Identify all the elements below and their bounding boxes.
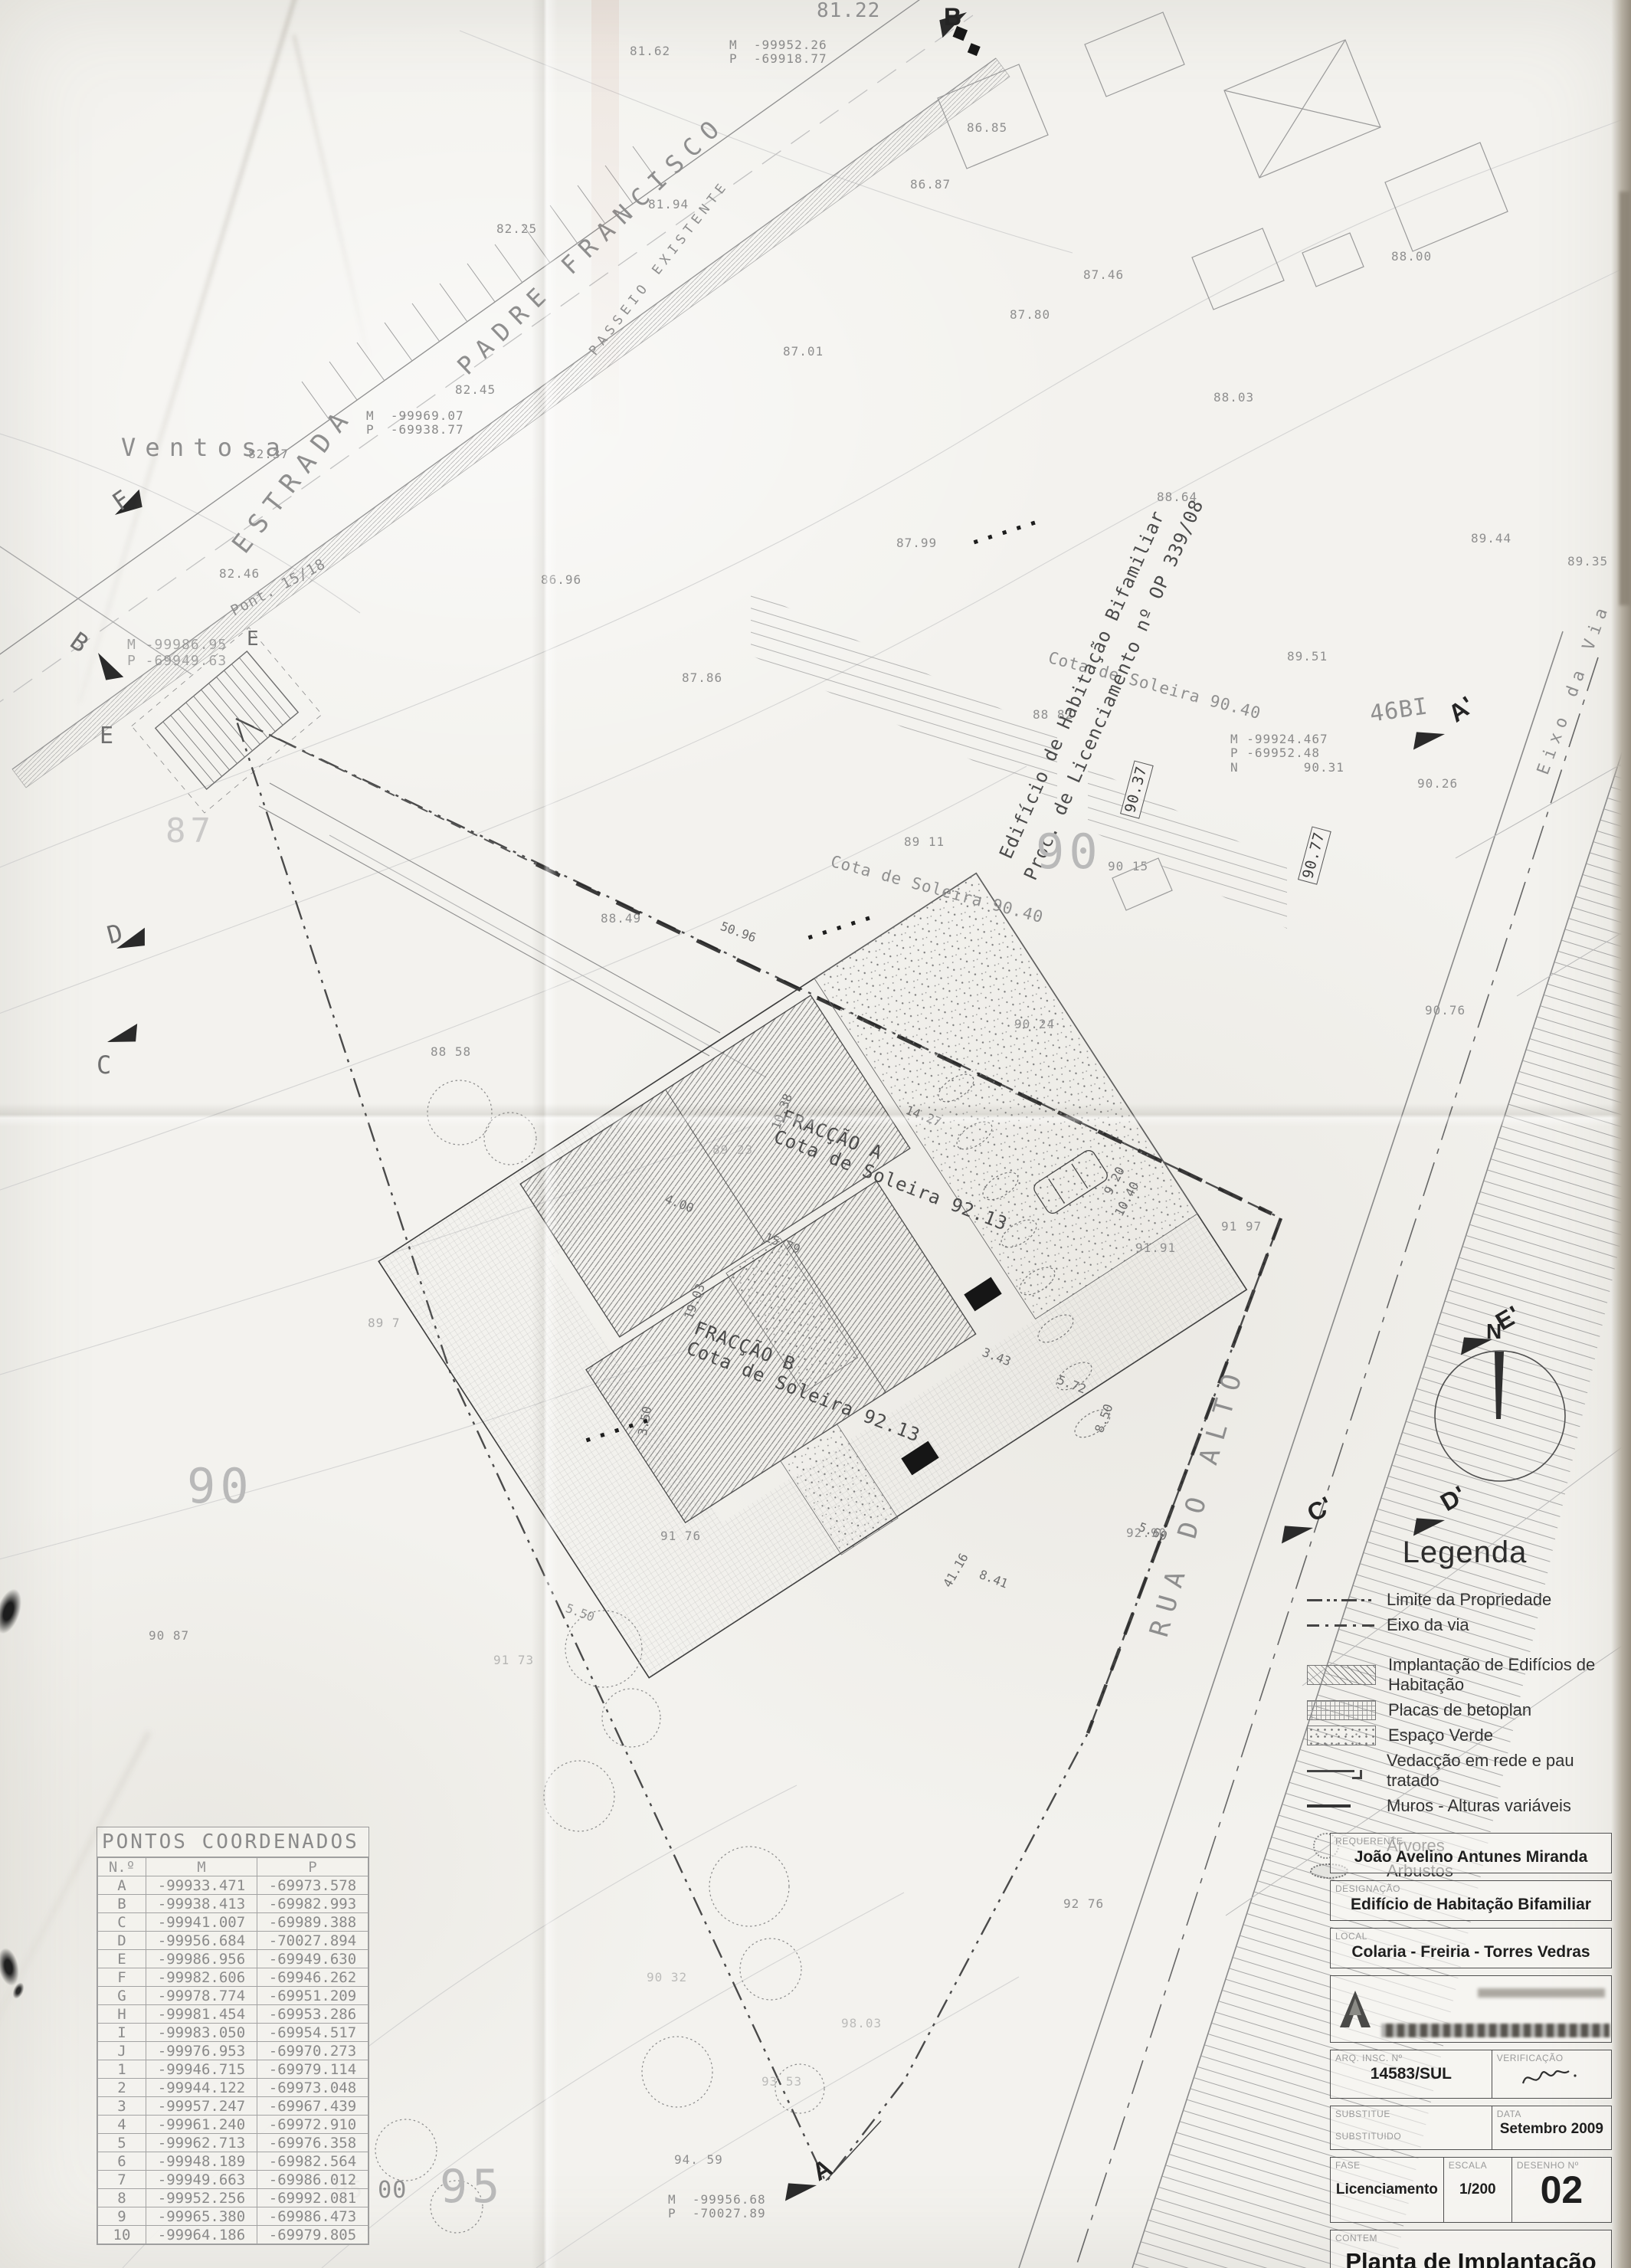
table-cell: -99944.122 [146, 2079, 257, 2097]
data-value: Setembro 2009 [1492, 2119, 1611, 2144]
local-box: LOCAL Colaria - Freiria - Torres Vedras [1330, 1928, 1612, 1968]
table-cell: -99962.713 [146, 2134, 257, 2152]
substituido-label: SUBSTITUIDO [1331, 2129, 1492, 2142]
elevation-label: 82.45 [455, 383, 496, 397]
table-cell: 6 [98, 2152, 146, 2171]
designacao-value: Edifício de Habitação Bifamiliar [1331, 1894, 1611, 1920]
elevation-label: 87.46 [1083, 268, 1124, 282]
boxed-elevation: 90.77 [1298, 826, 1331, 884]
elevation-label: 88.03 [1213, 391, 1254, 405]
table-cell: -69973.048 [257, 2079, 368, 2097]
legend-item: Placas de betoplan [1307, 1700, 1623, 1720]
table-row: 1-99946.715-69979.114 [98, 2060, 368, 2079]
table-cell: -99986.956 [146, 1950, 257, 1968]
elevation-label: 94. 59 [674, 2153, 723, 2167]
verificacao-box: VERIFICAÇÃO [1492, 2050, 1611, 2098]
table-row: 6-99948.189-69982.564 [98, 2152, 368, 2171]
legend-item: Implantação de Edifícios de Habitação [1307, 1655, 1623, 1695]
elevation-label: 81.62 [630, 44, 670, 58]
table-cell: -99965.380 [146, 2207, 257, 2226]
table-cell: 5 [98, 2134, 146, 2152]
elevation-label: 81.22 [817, 0, 880, 23]
elevation-label: 92 76 [1063, 1897, 1104, 1911]
dashdot-swatch-icon [1307, 1615, 1374, 1635]
substitue-box: SUBSTITUE SUBSTITUIDO [1331, 2106, 1492, 2149]
contour-label: 90 [1036, 824, 1102, 879]
elevation-label: 91.91 [1135, 1241, 1176, 1255]
contour-label: 90 [187, 1459, 254, 1513]
designacao-box: DESIGNAÇÃO Edifício de Habitação Bifamil… [1330, 1880, 1612, 1921]
street-label: Eixo da Via [1534, 600, 1614, 778]
elevation-label: 98.03 [841, 2017, 882, 2030]
elevation-label: 87.01 [783, 345, 824, 359]
table-cell: -99983.050 [146, 2024, 257, 2042]
coordinate-label: M -99969.07 P -69938.77 [366, 409, 464, 438]
table-cell: -69986.473 [257, 2207, 368, 2226]
coordinate-label: M -99956.68 P -70027.89 [668, 2193, 766, 2221]
elevation-label: 90 15 [1108, 860, 1148, 873]
legend-item: Vedacção em rede e pau tratado [1307, 1751, 1623, 1791]
table-row: E-99986.956-69949.630 [98, 1950, 368, 1968]
dimension-label: 5.72 [1055, 1373, 1088, 1397]
street-label: PADRE FRANCISCO [452, 110, 732, 381]
arq-verif-row: ARQ. INSC. Nº 14583/SUL VERIFICAÇÃO [1330, 2050, 1612, 2099]
contem-label: CONTEM [1331, 2230, 1611, 2243]
table-cell: -69982.564 [257, 2152, 368, 2171]
elevation-label: 87.80 [1010, 308, 1050, 322]
table-cell: -99957.247 [146, 2097, 257, 2116]
dimension-label: 3.50 [636, 1405, 655, 1437]
section-marker: B [944, 3, 962, 31]
table-cell: -99976.953 [146, 2042, 257, 2060]
elevation-label: 89 11 [904, 835, 945, 849]
table-cell: -69979.805 [257, 2226, 368, 2244]
table-cell: G [98, 1987, 146, 2005]
title-block: REQUERENTE João Avelino Antunes Miranda … [1330, 1833, 1612, 2268]
dashdotdot-swatch-icon [1307, 1590, 1374, 1610]
section-marker: E [100, 723, 114, 750]
col-header-p: P [257, 1858, 368, 1876]
dimension-label: 8.50 [1092, 1402, 1116, 1435]
contem-box: CONTEM Planta de Implantação [1330, 2230, 1612, 2268]
dimension-label: 3.43 [980, 1345, 1013, 1369]
coordinate-label: M -99924.467 P -69952.48 N 90.31 [1230, 733, 1344, 775]
dimension-label: 50.96 [719, 919, 758, 946]
table-cell: -69992.081 [257, 2189, 368, 2207]
legend-item: Muros - Alturas variáveis [1307, 1796, 1623, 1816]
elevation-label: 90 32 [647, 1971, 687, 1984]
table-cell: -69989.388 [257, 1913, 368, 1932]
table-cell: J [98, 2042, 146, 2060]
wall-swatch-icon [1307, 1796, 1374, 1816]
shrub-dots: ▪ ▪ ▪ ▪ ▪ [806, 913, 874, 945]
table-cell: -99978.774 [146, 1987, 257, 2005]
arq-insc-value: 14583/SUL [1331, 2063, 1492, 2089]
table-row: 3-99957.247-69967.439 [98, 2097, 368, 2116]
table-cell: -69949.630 [257, 1950, 368, 1968]
coordinate-table: PONTOS COORDENADOS N.º M P A-99933.471-6… [97, 1827, 369, 2245]
section-marker: D [104, 919, 126, 950]
table-cell: 10 [98, 2226, 146, 2244]
arq-insc-box: ARQ. INSC. Nº 14583/SUL [1331, 2050, 1492, 2098]
elevation-label: 86.96 [541, 573, 581, 587]
fase-label: FASE [1331, 2158, 1443, 2171]
legend-item-label: Implantação de Edifícios de Habitação [1388, 1655, 1623, 1695]
escala-box: ESCALA 1/200 [1443, 2158, 1511, 2222]
table-cell: -70027.894 [257, 1932, 368, 1950]
escala-value: 1/200 [1444, 2180, 1511, 2204]
requerente-value: João Avelino Antunes Miranda [1331, 1847, 1611, 1873]
section-marker: F [107, 484, 136, 516]
table-cell: C [98, 1913, 146, 1932]
escala-label: ESCALA [1444, 2158, 1511, 2171]
table-cell: -69982.993 [257, 1895, 368, 1913]
table-cell: -69967.439 [257, 2097, 368, 2116]
fence-swatch-icon [1307, 1761, 1374, 1781]
elevation-label: 89.44 [1471, 532, 1511, 546]
table-row: I-99983.050-69954.517 [98, 2024, 368, 2042]
table-cell: -99964.186 [146, 2226, 257, 2244]
elevation-label: 86.87 [910, 178, 951, 192]
table-row: 5-99962.713-69976.358 [98, 2134, 368, 2152]
scanned-site-plan-sheet: 81.62M -99952.26 P -69918.7781.22B86.858… [0, 0, 1631, 2268]
plan-label: FRACÇÃO A Cota de Soleira 92.13 [771, 1106, 1018, 1235]
coordinate-label: M -99986.95 P -69949.63 [127, 637, 227, 669]
plan-label: FRACÇÃO B Cota de Soleira 92.13 [683, 1318, 931, 1447]
table-cell: -99938.413 [146, 1895, 257, 1913]
elevation-label: 82.46 [219, 567, 260, 581]
elevation-label: 89 23 [712, 1143, 753, 1157]
architect-logo-icon [1331, 1976, 1380, 2042]
legend-item: Limite da Propriedade [1307, 1590, 1623, 1610]
table-cell: -69970.273 [257, 2042, 368, 2060]
substitue-data-row: SUBSTITUE SUBSTITUIDO DATA Setembro 2009 [1330, 2106, 1612, 2150]
table-row: 10-99964.186-69979.805 [98, 2226, 368, 2244]
data-box: DATA Setembro 2009 [1492, 2106, 1611, 2149]
section-marker: C' [1302, 1491, 1338, 1528]
table-cell: -99941.007 [146, 1913, 257, 1932]
architect-stamp [1330, 1975, 1612, 2043]
legend-item: Eixo da via [1307, 1615, 1623, 1635]
table-cell: 7 [98, 2171, 146, 2189]
coordinate-label: M -99952.26 P -69918.77 [729, 38, 827, 67]
table-cell: A [98, 1876, 146, 1895]
dimension-label: 41.16 [941, 1551, 971, 1590]
local-value: Colaria - Freiria - Torres Vedras [1331, 1942, 1611, 1968]
elevation-label: 91 97 [1221, 1220, 1262, 1234]
verificacao-label: VERIFICAÇÃO [1492, 2050, 1611, 2063]
fase-box: FASE Licenciamento [1331, 2158, 1443, 2222]
table-row: C-99941.007-69989.388 [98, 1913, 368, 1932]
coordinate-table-title: PONTOS COORDENADOS [97, 1827, 368, 1857]
dimension-label: 4.00 [663, 1192, 696, 1216]
table-header-row: N.º M P [98, 1858, 368, 1876]
table-cell: 3 [98, 2097, 146, 2116]
elevation-label: 82.37 [248, 447, 289, 461]
col-header-m: M [146, 1858, 257, 1876]
table-row: 8-99952.256-69992.081 [98, 2189, 368, 2207]
table-cell: D [98, 1932, 146, 1950]
elevation-label: 88.49 [601, 912, 641, 926]
speckle-swatch-icon [1307, 1726, 1376, 1745]
elevation-label: 93 53 [761, 2075, 802, 2089]
table-cell: 4 [98, 2116, 146, 2134]
table-row: 9-99965.380-69986.473 [98, 2207, 368, 2226]
table-cell: -99982.606 [146, 1968, 257, 1987]
elevation-label: 86.85 [967, 121, 1007, 135]
table-cell: -99949.663 [146, 2171, 257, 2189]
table-row: G-99978.774-69951.209 [98, 1987, 368, 2005]
drawing-title: Planta de Implantação [1331, 2243, 1611, 2268]
elevation-label: 89.35 [1567, 555, 1608, 569]
elevation-label: 82.25 [496, 222, 537, 236]
local-label: LOCAL [1331, 1929, 1611, 1942]
table-cell: -69973.578 [257, 1876, 368, 1895]
dimension-label: 8.41 [977, 1568, 1010, 1591]
section-marker: C [97, 1051, 112, 1080]
table-cell: 8 [98, 2189, 146, 2207]
elevation-label: 88.00 [1391, 250, 1432, 264]
table-cell: -69979.114 [257, 2060, 368, 2079]
shrub-dots: ▪ ▪ ▪ ▪ ▪ [971, 517, 1040, 549]
table-cell: 9 [98, 2207, 146, 2226]
table-cell: 2 [98, 2079, 146, 2097]
elevation-label: 91 73 [493, 1653, 534, 1667]
requerente-box: REQUERENTE João Avelino Antunes Miranda [1330, 1833, 1612, 1873]
table-cell: -99981.454 [146, 2005, 257, 2024]
street-label: RUA DO ALTO [1145, 1362, 1251, 1640]
fase-value: Licenciamento [1331, 2180, 1443, 2204]
section-marker: D' [1436, 1480, 1472, 1517]
table-cell: -99933.471 [146, 1876, 257, 1895]
data-label: DATA [1492, 2106, 1611, 2119]
dimension-label: 14.27 [903, 1103, 943, 1129]
legend-item-label: Placas de betoplan [1388, 1700, 1531, 1720]
dimension-label: 5.50 [564, 1601, 596, 1624]
legend-item: Espaço Verde [1307, 1726, 1623, 1745]
legend-item-label: Espaço Verde [1388, 1726, 1493, 1745]
elevation-label: 90 87 [149, 1629, 189, 1643]
desenho-value: 02 [1512, 2171, 1611, 2212]
elevation-label: 88 58 [431, 1045, 471, 1059]
table-cell: H [98, 2005, 146, 2024]
table-cell: -69986.012 [257, 2171, 368, 2189]
legend-title: Legenda [1307, 1535, 1623, 1570]
elevation-label: 90.24 [1014, 1018, 1055, 1031]
col-header-numero: N.º [98, 1858, 146, 1876]
table-row: F-99982.606-69946.262 [98, 1968, 368, 1987]
table-row: 4-99961.240-69972.910 [98, 2116, 368, 2134]
table-cell: B [98, 1895, 146, 1913]
table-row: J-99976.953-69970.273 [98, 2042, 368, 2060]
arq-insc-label: ARQ. INSC. Nº [1331, 2050, 1492, 2063]
table-row: 7-99949.663-69986.012 [98, 2171, 368, 2189]
contour-label: 95 [440, 2161, 504, 2214]
table-row: B-99938.413-69982.993 [98, 1895, 368, 1913]
signature [1517, 2063, 1586, 2089]
designacao-label: DESIGNAÇÃO [1331, 1881, 1611, 1894]
elevation-label: 87.86 [682, 671, 722, 685]
section-marker: N [1486, 1319, 1502, 1344]
table-cell: -69946.262 [257, 1968, 368, 1987]
contour-label: 87 [165, 812, 215, 851]
table-row: D-99956.684-70027.894 [98, 1932, 368, 1950]
substitue-label: SUBSTITUE [1331, 2106, 1492, 2119]
table-row: 2-99944.122-69973.048 [98, 2079, 368, 2097]
table-row: A-99933.471-69973.578 [98, 1876, 368, 1895]
legend-item-label: Eixo da via [1387, 1615, 1469, 1635]
table-cell: -99946.715 [146, 2060, 257, 2079]
elevation-label: 87.99 [896, 536, 937, 550]
legend-item-label: Muros - Alturas variáveis [1387, 1796, 1571, 1816]
table-cell: -99952.256 [146, 2189, 257, 2207]
table-cell: -69972.910 [257, 2116, 368, 2134]
hatch-swatch-icon [1307, 1665, 1376, 1685]
architect-stamp-blurred [1380, 1976, 1611, 2042]
desenho-box: DESENHO Nº 02 [1511, 2158, 1611, 2222]
boxed-elevation: 90.37 [1120, 760, 1154, 818]
table-cell: -99948.189 [146, 2152, 257, 2171]
legend-item-label: Vedacção em rede e pau tratado [1387, 1751, 1623, 1791]
table-cell: E [98, 1950, 146, 1968]
section-marker: A [807, 2153, 837, 2187]
table-cell: -69954.517 [257, 2024, 368, 2042]
street-label: ESTRADA [227, 400, 361, 559]
requerente-label: REQUERENTE [1331, 1834, 1611, 1847]
table-cell: -69953.286 [257, 2005, 368, 2024]
elevation-label: 46BI [1368, 693, 1430, 728]
elevation-label: 89 7 [368, 1316, 401, 1330]
table-row: H-99981.454-69953.286 [98, 2005, 368, 2024]
table-cell: I [98, 2024, 146, 2042]
legend-item-label: Limite da Propriedade [1387, 1590, 1551, 1610]
elevation-label: 90.76 [1425, 1004, 1466, 1018]
section-marker: E [247, 628, 260, 651]
table-cell: F [98, 1968, 146, 1987]
dimension-label: 15.79 [762, 1231, 802, 1257]
section-marker: A' [1443, 690, 1480, 728]
elevation-label: 90.26 [1417, 777, 1458, 791]
table-cell: -99961.240 [146, 2116, 257, 2134]
table-cell: -69951.209 [257, 1987, 368, 2005]
section-marker: B [65, 627, 94, 659]
grid-swatch-icon [1307, 1700, 1376, 1720]
elevation-label: 92.90 [1126, 1526, 1167, 1540]
table-cell: 1 [98, 2060, 146, 2079]
elevation-label: 89.51 [1287, 650, 1328, 664]
dimension-label: 19.03 [682, 1282, 708, 1322]
table-cell: -69976.358 [257, 2134, 368, 2152]
elevation-label: 91 76 [660, 1529, 701, 1543]
fase-escala-desenho-row: FASE Licenciamento ESCALA 1/200 DESENHO … [1330, 2157, 1612, 2223]
table-cell: -99956.684 [146, 1932, 257, 1950]
